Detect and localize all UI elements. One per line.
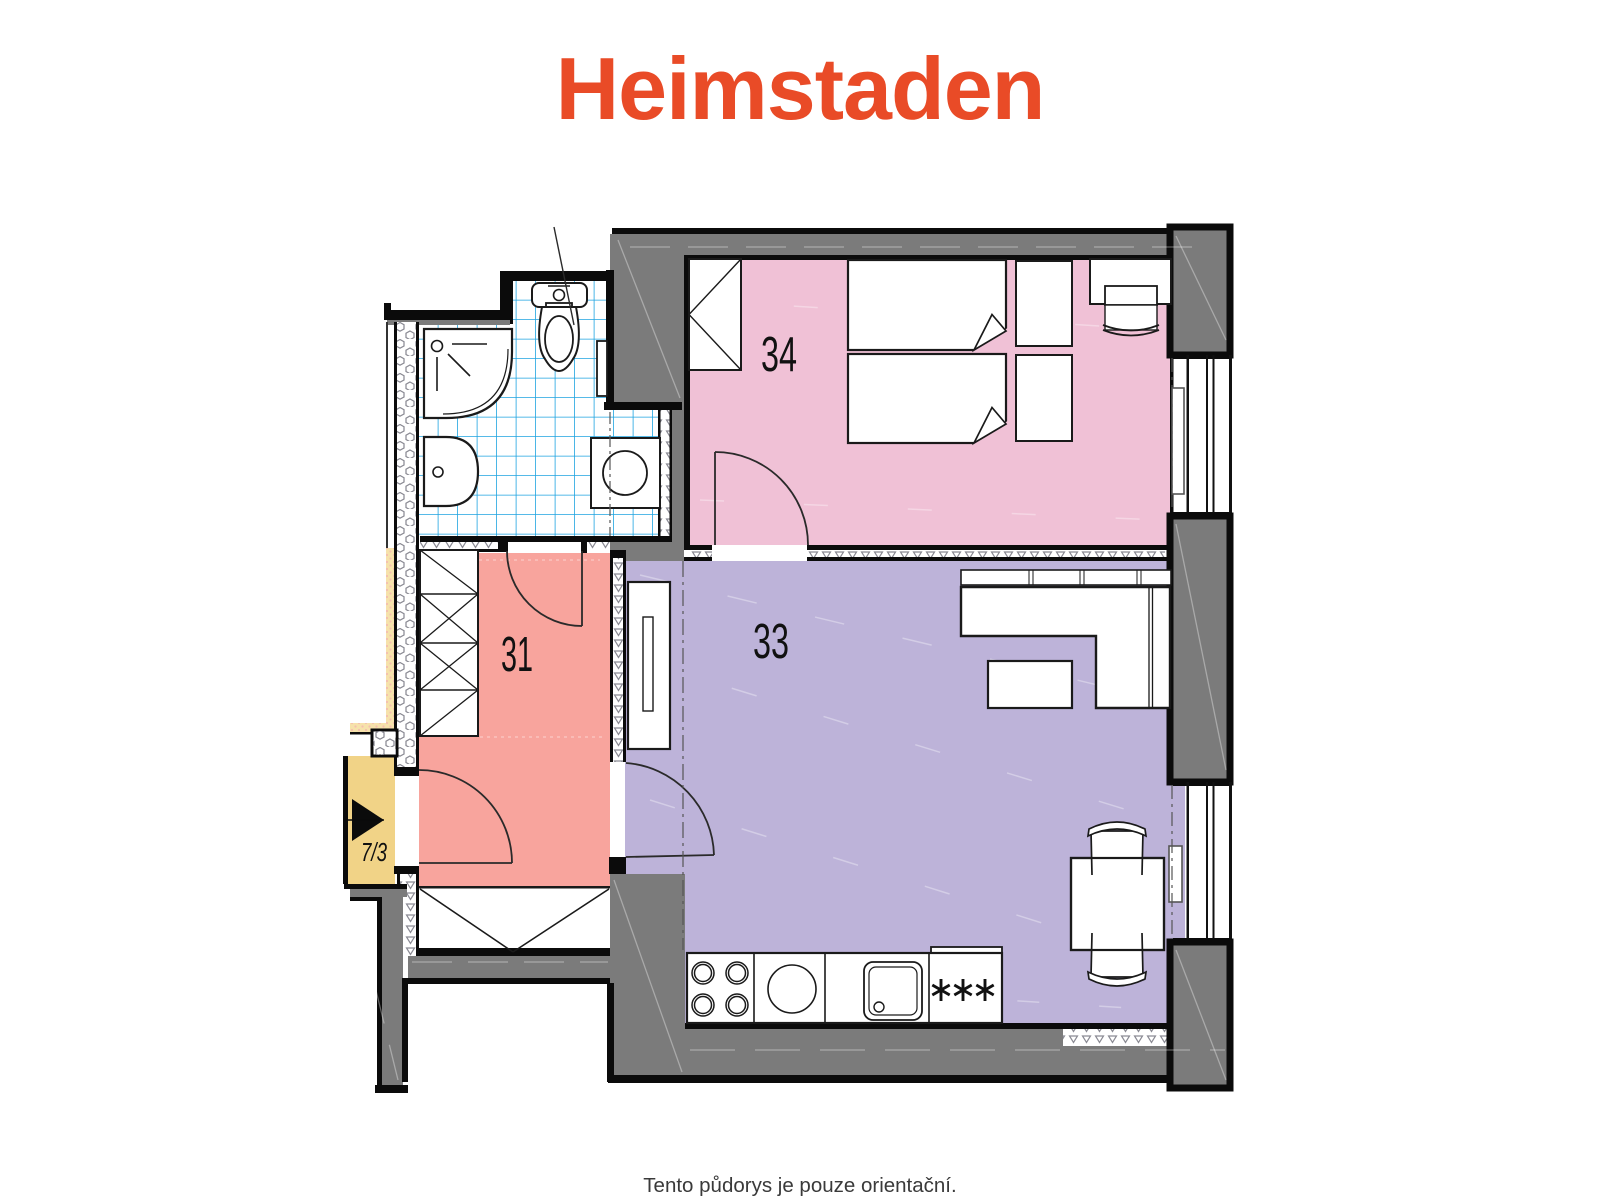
svg-text:Tento půdorys je pouze orienta: Tento půdorys je pouze orientační.	[643, 1174, 956, 1197]
svg-text:31: 31	[501, 628, 533, 682]
svg-text:34: 34	[761, 328, 797, 382]
svg-text:Heimstaden: Heimstaden	[556, 39, 1045, 138]
svg-text:33: 33	[753, 615, 789, 669]
svg-text:7/3: 7/3	[361, 837, 387, 867]
